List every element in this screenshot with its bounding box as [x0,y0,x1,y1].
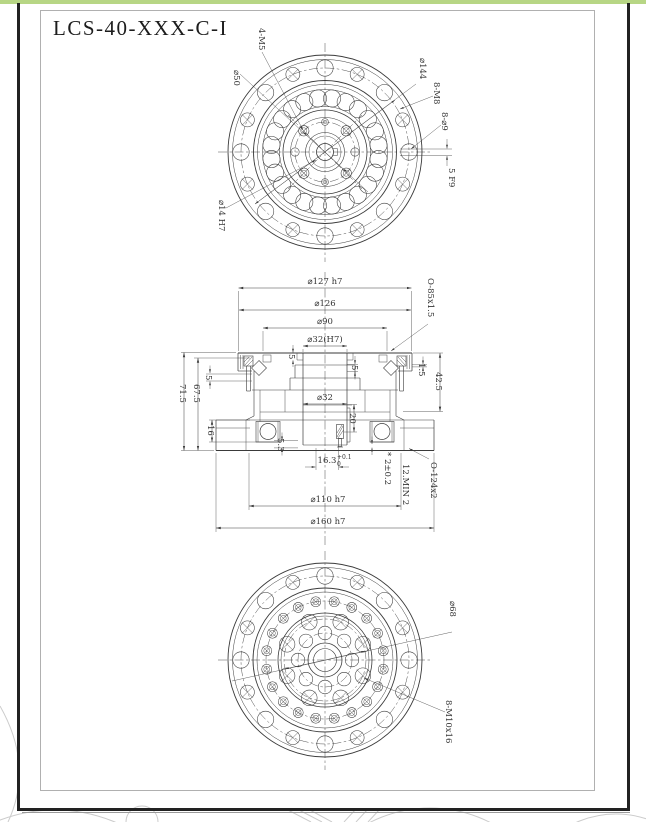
dim-53: 5.3 [275,438,285,452]
dim-675: 67.5 [191,384,201,403]
dim-425: 42.5 [433,372,443,391]
dim-d127-h7: ⌀127 h7 [308,277,343,287]
dim-d160-h7: ⌀160 h7 [311,517,346,527]
dim-d126: ⌀126 [314,299,335,309]
dim-d110-h7: ⌀110 h7 [311,495,346,505]
dim-d32-h7: ⌀32(H7) [307,334,342,345]
dim-16: 16 [205,425,215,436]
dim-d50: ⌀50 [231,70,241,86]
dim-d14-H7: ⌀14 H7 [216,200,226,231]
dim-5-mid: 5 [349,365,359,370]
dim-12-min-2: 12.MIN 2 [400,464,410,505]
dim-20: 20 [347,413,357,424]
dim-163: 16.3 [318,456,337,466]
dim-8-d9: 8-⌀9 [439,112,449,131]
dim-5-hub: 5 [286,354,296,359]
dim-5-left: 5 [203,375,213,380]
section-dimensions: ⌀127 h7 ⌀126 ⌀90 ⌀32(H7) ⌀32 16.3 +0.1 0… [177,277,443,532]
dim-d90: ⌀90 [317,317,333,327]
dim-15: 1.5 [416,363,426,377]
dim-5-F9: 5 F9 [446,168,456,187]
dim-d32: ⌀32 [317,393,333,403]
dim-163-tol-dn: 0 [337,461,341,468]
top-flange-view: 4-M5 ⌀50 ⌀144 8-M8 8-⌀9 5 F9 ⌀14 H7 [216,28,456,262]
dim-8-M8: 8-M8 [431,82,441,104]
dim-d144: ⌀144 [417,58,427,79]
dim-d68: ⌀68 [447,601,457,617]
drawing-page: LCS-40-XXX-C-I [0,0,646,822]
bottom-flange-view: ⌀68 8-M10x16 [218,551,457,770]
dim-4-M5: 4-M5 [256,28,266,50]
dim-8-M10x16: 8-M10x16 [443,700,453,743]
section-view: ⌀127 h7 ⌀126 ⌀90 ⌀32(H7) ⌀32 16.3 +0.1 0… [177,272,443,545]
oring-spec-bottom: O-124x2 [428,462,438,499]
dim-2-tol: * 2±0.2 [382,452,392,485]
dim-715: 71.5 [177,384,187,403]
dim-163-tol-up: +0.1 [337,454,352,461]
engineering-drawing: 4-M5 ⌀50 ⌀144 8-M8 8-⌀9 5 F9 ⌀14 H7 [0,0,646,822]
oring-spec-top: O-85x1.5 [425,278,435,317]
